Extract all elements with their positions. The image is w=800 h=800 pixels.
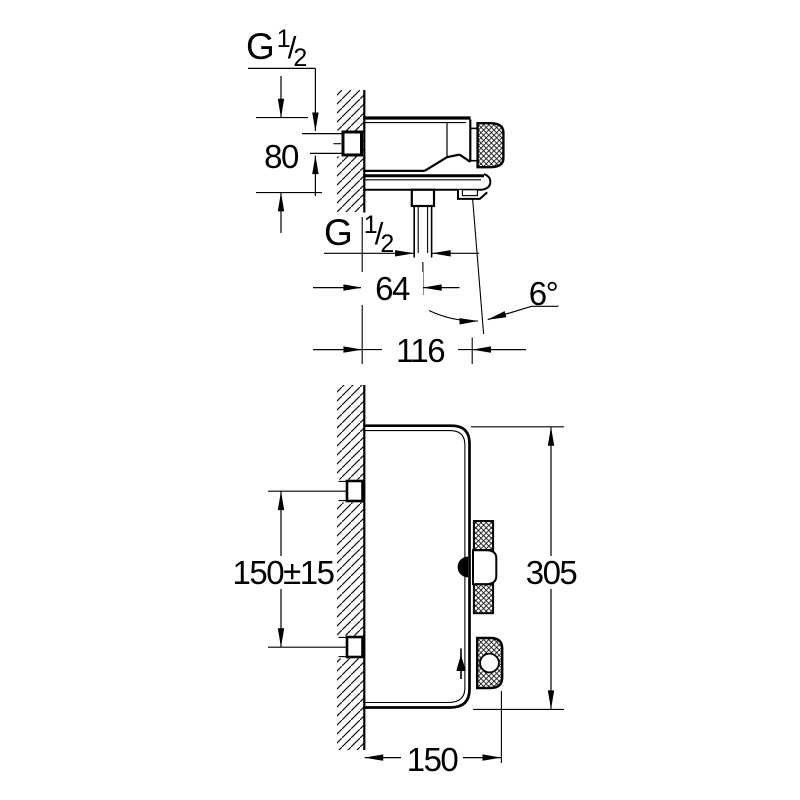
side-dimension-lines: [248, 68, 559, 349]
diverter-arrow-icon: [456, 649, 465, 680]
front-diverter-knob: [477, 638, 502, 688]
drawing-canvas: [0, 0, 800, 800]
side-knurled-knob: [478, 123, 504, 167]
label-height-305: 305: [521, 556, 581, 589]
temperature-marker: [458, 557, 468, 578]
front-thermostat-knob: [458, 521, 497, 613]
label-reach-116: 116: [382, 334, 458, 367]
label-inlet-thread: G1/2: [246, 26, 307, 72]
technical-drawing-page: G1/2 80 G1/2 64 6° 116 150±15 305 150: [0, 0, 800, 800]
front-control-button: [473, 550, 496, 584]
front-view-wall-hatch: [337, 385, 364, 750]
label-outlet-thread: G1/2: [324, 212, 394, 258]
label-spacing-150-15: 150±15: [231, 556, 335, 589]
label-distance-64: 64: [361, 272, 423, 305]
front-body-outer: [363, 426, 469, 708]
side-view: [248, 68, 559, 364]
side-outlet-nut: [412, 190, 434, 206]
label-width-150: 150: [401, 743, 463, 776]
label-angle-6: 6°: [521, 277, 565, 310]
front-body-inner: [363, 431, 465, 703]
angle-arc: [429, 311, 478, 322]
spray-angle-line: [473, 199, 484, 335]
side-mixer-body: [363, 118, 477, 171]
label-offset-80: 80: [252, 140, 310, 173]
front-extension-lines: [268, 427, 564, 763]
